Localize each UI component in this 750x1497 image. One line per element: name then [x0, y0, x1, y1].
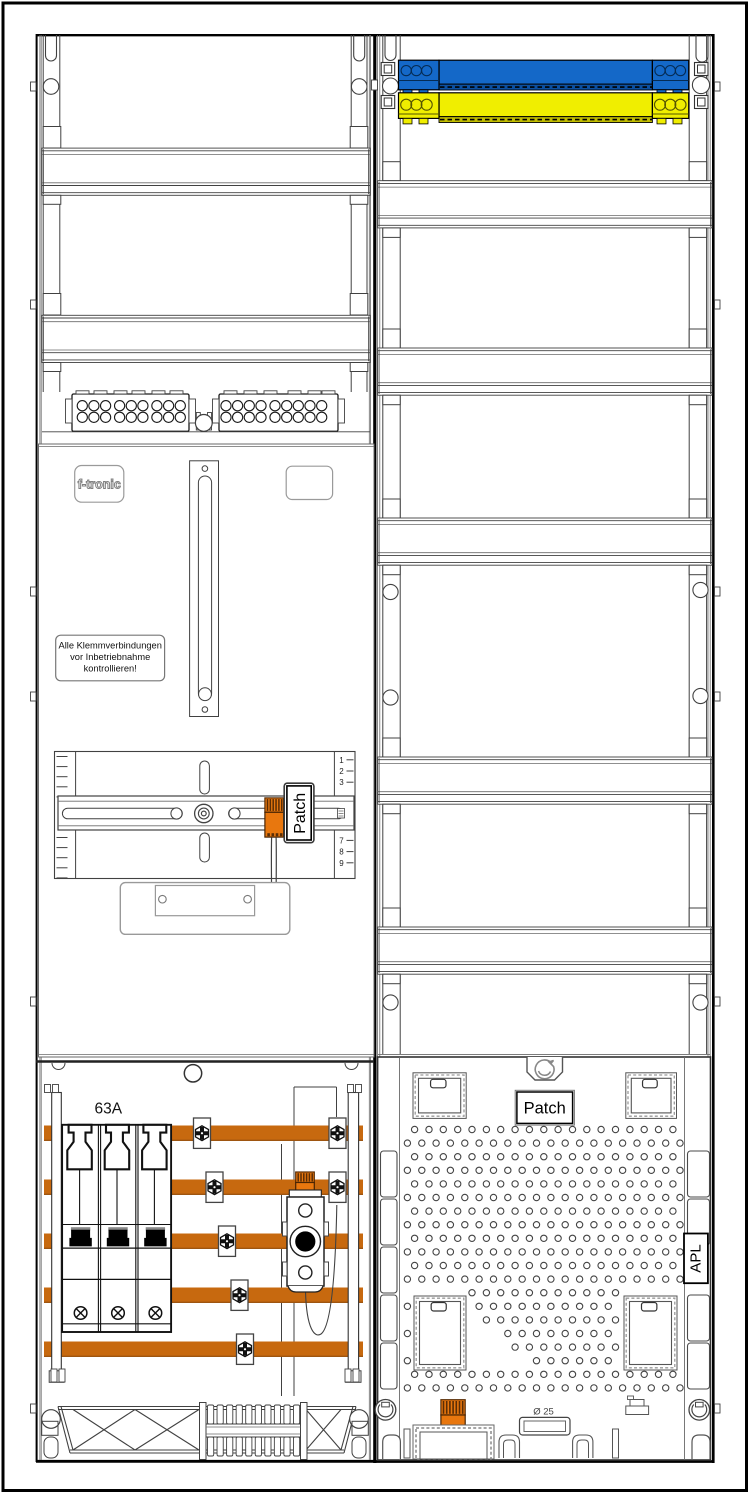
svg-text:7: 7	[339, 836, 344, 845]
svg-text:Patch: Patch	[524, 1100, 566, 1118]
svg-text:8: 8	[339, 848, 344, 857]
svg-text:APL: APL	[688, 1244, 705, 1272]
svg-text:9: 9	[339, 859, 344, 868]
svg-text:Alle Klemmverbindungen: Alle Klemmverbindungen	[59, 641, 162, 651]
svg-text:3: 3	[339, 778, 344, 787]
svg-text:2: 2	[339, 767, 344, 776]
svg-text:1: 1	[339, 756, 344, 765]
svg-text:63A: 63A	[95, 1101, 123, 1118]
svg-text:Patch: Patch	[292, 793, 309, 834]
svg-text:f-tronic: f-tronic	[78, 478, 121, 492]
svg-text:vor Inbetriebnahme: vor Inbetriebnahme	[70, 652, 150, 662]
svg-text:kontrollieren!: kontrollieren!	[84, 664, 137, 674]
svg-text:Ø 25: Ø 25	[533, 1407, 554, 1418]
